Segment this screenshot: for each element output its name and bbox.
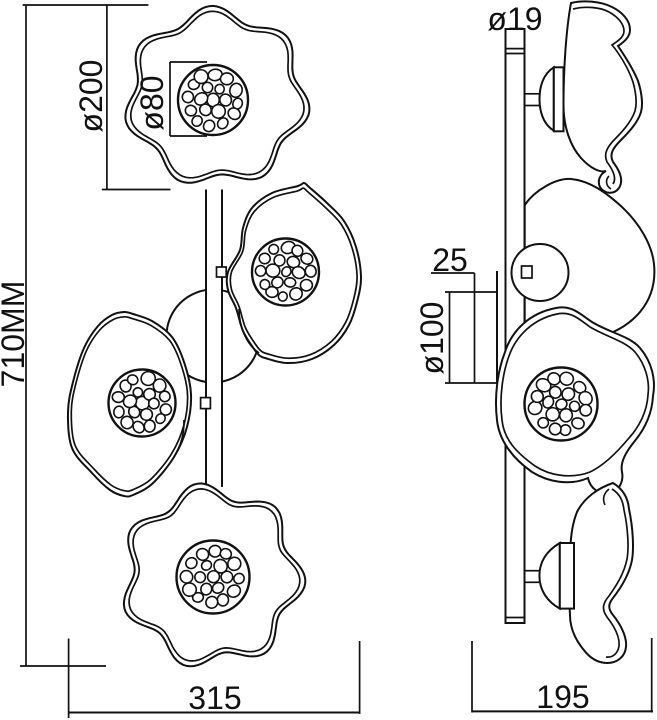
svg-text:ø80: ø80 bbox=[134, 75, 170, 130]
svg-text:ø200: ø200 bbox=[73, 60, 109, 133]
svg-text:710MM: 710MM bbox=[0, 281, 31, 388]
svg-text:195: 195 bbox=[536, 679, 589, 715]
svg-text:ø19: ø19 bbox=[487, 1, 542, 37]
svg-text:25: 25 bbox=[432, 242, 468, 278]
svg-text:ø100: ø100 bbox=[414, 302, 450, 375]
svg-text:315: 315 bbox=[188, 680, 241, 716]
